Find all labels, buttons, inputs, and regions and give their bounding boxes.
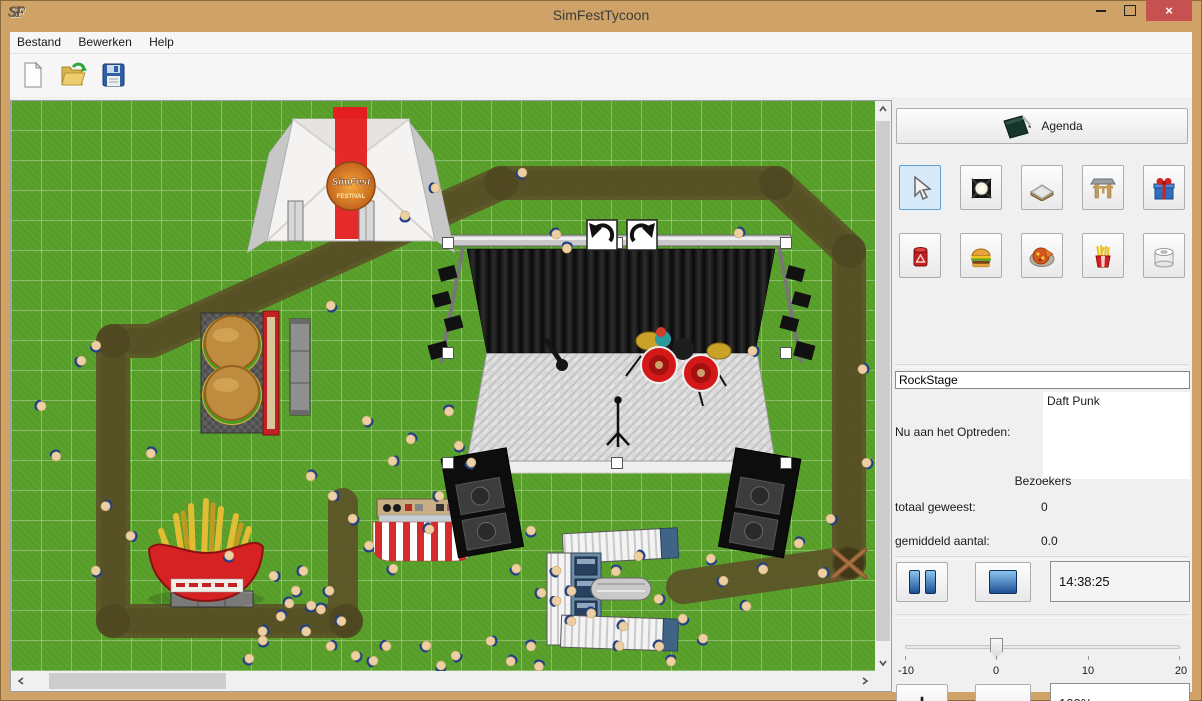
visitor [525, 639, 537, 652]
side-panel: Agenda [893, 100, 1192, 692]
maximize-icon [1124, 5, 1136, 16]
visitor [704, 553, 717, 567]
visitor [508, 562, 524, 578]
close-button[interactable]: × [1146, 0, 1192, 21]
visitor [144, 445, 159, 460]
visitor [304, 467, 320, 483]
stop-icon [989, 570, 1017, 594]
menu-bewerken[interactable]: Bewerken [71, 32, 138, 49]
pause-icon [909, 570, 920, 594]
total-visitors-label: totaal geweest: [895, 500, 976, 514]
visitor [365, 654, 380, 669]
speed-slider-track[interactable] [905, 645, 1180, 649]
save-file-button[interactable] [96, 58, 130, 92]
stage-name-input[interactable] [895, 371, 1190, 389]
window-title: SimFestTycoon [0, 0, 1202, 32]
visitor [349, 649, 365, 664]
agenda-button[interactable]: Agenda [896, 108, 1188, 144]
burger-stand[interactable] [201, 311, 279, 435]
separator [895, 364, 1189, 368]
zoom-in-button[interactable]: + [896, 684, 948, 701]
minimize-icon [1096, 10, 1106, 12]
vertical-scrollbar[interactable] [875, 101, 891, 671]
hamburger-icon [967, 243, 995, 269]
new-file-button[interactable] [16, 58, 50, 92]
stop-button[interactable] [975, 562, 1031, 602]
scroll-right-button[interactable] [857, 673, 873, 689]
cursor-icon [907, 175, 933, 201]
visitor [449, 649, 465, 665]
zoom-level-display: 100% [1050, 683, 1190, 701]
visitor [696, 633, 710, 647]
visitor [73, 354, 88, 369]
visitor [417, 639, 433, 655]
burger-tool-button[interactable] [960, 233, 1002, 278]
visitor [324, 299, 339, 315]
visitor [296, 565, 309, 577]
visitor [792, 535, 807, 550]
visitor [33, 399, 48, 413]
visitor [388, 455, 400, 467]
toilet-tool-button[interactable] [1143, 233, 1185, 278]
path-tile-icon [1028, 175, 1056, 201]
visitor [268, 569, 282, 582]
visitor [525, 526, 536, 538]
visitor [400, 211, 411, 223]
pizza-icon [1028, 243, 1056, 269]
urinal-trough [591, 578, 651, 600]
gift-tool-button[interactable] [1143, 165, 1185, 210]
separator [895, 614, 1189, 618]
visitor [610, 564, 623, 577]
menu-bar: Bestand Bewerken Help [10, 32, 1192, 54]
average-visitors-value: 0.0 [1041, 534, 1058, 548]
horizontal-scroll-thumb[interactable] [49, 673, 226, 689]
rotate-left-button[interactable] [587, 220, 617, 250]
visitor [443, 404, 455, 417]
entrance-tent[interactable]: SimFest FESTIVAL [247, 107, 455, 253]
festival-map[interactable]: SimFest FESTIVAL [11, 101, 875, 671]
separator [895, 556, 1189, 560]
now-performing-value: Daft Punk [1043, 392, 1190, 408]
pause-button[interactable] [896, 562, 948, 602]
simfest-logo: SimFest FESTIVAL [327, 162, 375, 210]
main-toolbar [10, 54, 1192, 97]
gate-tool-button[interactable] [1082, 165, 1124, 210]
path-tool-button[interactable] [1021, 165, 1063, 210]
visitor [378, 638, 393, 653]
maximize-button[interactable] [1116, 0, 1144, 21]
gift-icon [1150, 175, 1178, 201]
open-folder-icon [58, 60, 88, 90]
visitor [384, 562, 400, 578]
chevron-down-icon [878, 658, 888, 668]
spotlight-icon [968, 175, 994, 201]
svg-text:FESTIVAL: FESTIVAL [337, 194, 366, 200]
menu-bestand[interactable]: Bestand [10, 32, 68, 49]
client-area: Bestand Bewerken Help [10, 32, 1192, 692]
pizza-tool-button[interactable] [1021, 233, 1063, 278]
selection-handle[interactable] [443, 458, 454, 469]
title-bar[interactable]: SF SimFestTycoon × [0, 0, 1202, 32]
open-file-button[interactable] [56, 58, 90, 92]
visitor [325, 639, 339, 653]
slider-tick-0: 0 [993, 665, 999, 677]
visitor [452, 440, 466, 454]
trash-tool-button[interactable] [899, 233, 941, 278]
toilet-roll-icon [1150, 243, 1178, 269]
vertical-scroll-thumb[interactable] [876, 121, 890, 641]
new-document-icon [18, 60, 48, 90]
scroll-left-button[interactable] [13, 673, 29, 689]
path-end-marker[interactable] [833, 548, 865, 578]
visitor [653, 592, 667, 605]
now-performing-label: Nu aan het Optreden: [895, 425, 1010, 439]
total-visitors-value: 0 [1041, 500, 1048, 514]
plus-icon: + [915, 692, 929, 701]
visitors-header: Bezoekers [973, 474, 1113, 488]
spotlight-tool-button[interactable] [960, 165, 1002, 210]
visitor [360, 414, 376, 430]
chevron-up-icon [878, 104, 888, 114]
minus-icon: − [996, 692, 1010, 701]
selection-handle[interactable] [781, 458, 792, 469]
visitor [534, 587, 547, 600]
slider-tick-10: 10 [1082, 665, 1094, 677]
stage[interactable] [427, 235, 815, 558]
visitor [48, 448, 63, 463]
trash-can-icon [907, 243, 933, 269]
visitor [665, 654, 677, 667]
save-floppy-icon [98, 60, 128, 90]
burger-2 [202, 365, 262, 425]
slider-tick-minus10: -10 [898, 665, 914, 677]
fries-icon [1089, 243, 1117, 269]
visitor [533, 659, 546, 671]
selection-handle[interactable] [781, 238, 792, 249]
app-window: SF SimFestTycoon × Bestand Bewerken Help [0, 0, 1202, 701]
close-icon: × [1165, 3, 1173, 18]
fries-tool-button[interactable] [1082, 233, 1124, 278]
scroll-up-button[interactable] [875, 101, 891, 117]
slider-tick-20: 20 [1175, 665, 1187, 677]
now-performing-box: Daft Punk [1043, 392, 1190, 479]
agenda-book-icon [1001, 113, 1031, 139]
visitor [435, 661, 447, 671]
bench-vertical[interactable] [290, 319, 310, 415]
selection-handle[interactable] [443, 238, 454, 249]
agenda-label: Agenda [1041, 119, 1082, 133]
selection-handle[interactable] [781, 348, 792, 359]
svg-text:SimFest: SimFest [332, 177, 372, 188]
zoom-out-button[interactable]: − [975, 684, 1031, 701]
average-visitors-label: gemiddeld aantal: [895, 534, 990, 548]
selection-handle[interactable] [443, 348, 454, 359]
visitor [241, 652, 257, 668]
rotate-right-button[interactable] [627, 220, 657, 250]
menu-help[interactable]: Help [142, 32, 181, 49]
selection-handle[interactable] [612, 458, 623, 469]
chevron-left-icon [16, 676, 26, 686]
minimize-button[interactable] [1088, 0, 1114, 21]
horizontal-scrollbar[interactable] [11, 671, 875, 691]
visitor [404, 430, 420, 446]
time-display: 14:38:25 [1050, 561, 1190, 602]
visitor [486, 635, 498, 646]
scroll-down-button[interactable] [875, 655, 891, 671]
visitor [504, 652, 520, 668]
chevron-right-icon [860, 676, 870, 686]
map-canvas-wrap: SimFest FESTIVAL [10, 100, 892, 692]
entrance-gate-icon [1089, 175, 1117, 201]
select-tool-button[interactable] [899, 165, 941, 210]
visitor [738, 599, 753, 613]
